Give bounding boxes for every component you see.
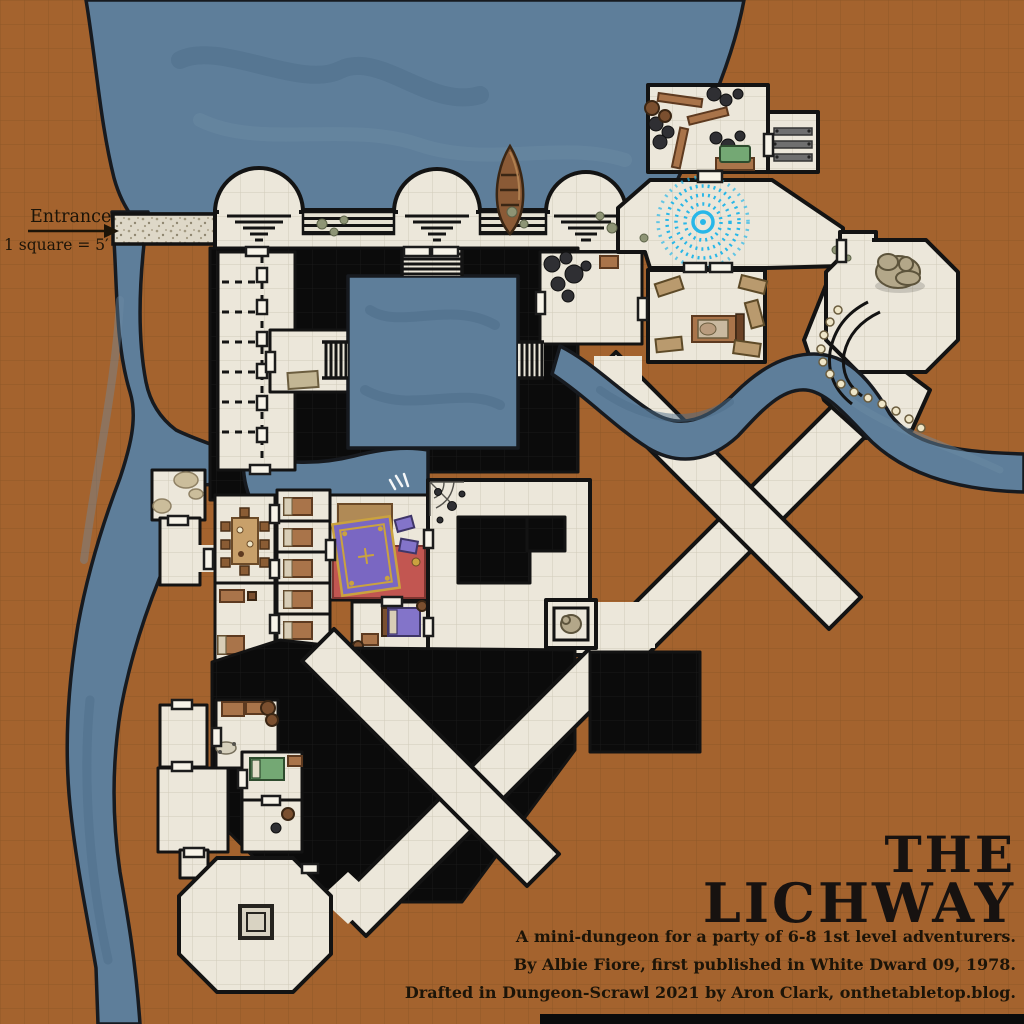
empty-room — [160, 705, 207, 767]
barrel — [417, 601, 427, 611]
desk — [220, 590, 244, 602]
barrel — [282, 808, 294, 820]
shrine — [546, 600, 596, 648]
scale-label: 1 square = 5′ — [4, 236, 109, 254]
sunken-pool — [322, 250, 544, 448]
black-square-room — [590, 652, 700, 752]
coffin-room — [648, 270, 767, 362]
credit-line1: A mini-dungeon for a party of 6-8 1st le… — [515, 927, 1016, 946]
west-corridor — [160, 518, 200, 585]
rubble-room — [152, 470, 205, 520]
stone-slab — [287, 371, 318, 389]
side-table — [362, 634, 378, 645]
map-canvas: Entrance 1 square = 5′ THE LICHWAY A min… — [0, 0, 1024, 1024]
map-title-line2: LICHWAY — [703, 871, 1016, 935]
south-wall-strip — [540, 1014, 1024, 1024]
entrance-tunnel — [113, 214, 217, 244]
green-chest — [720, 146, 750, 162]
ritual-room — [330, 495, 428, 600]
barrel — [645, 101, 659, 115]
pit-square — [240, 906, 272, 938]
lower-hall — [158, 768, 228, 852]
coffin — [655, 337, 682, 353]
debris-room — [540, 252, 642, 344]
weapon-racks — [772, 128, 812, 161]
south-octagon — [179, 858, 331, 992]
purple-bedroom — [352, 601, 428, 652]
dining-room — [215, 495, 275, 583]
entrance-label: Entrance — [30, 207, 111, 227]
bed-cells — [277, 490, 330, 645]
chair — [399, 539, 418, 554]
credit-line3: Drafted in Dungeon-Scrawl 2021 by Aron C… — [405, 983, 1016, 1002]
credit-line2: By Albie Fiore, first published in White… — [514, 955, 1016, 974]
barrel — [659, 110, 671, 122]
ornate-rug — [332, 516, 399, 595]
dungeon-map: Entrance 1 square = 5′ THE LICHWAY A min… — [0, 0, 1024, 1024]
green-bed-room — [242, 752, 302, 800]
coffin — [733, 340, 761, 356]
cellar-room — [242, 800, 302, 852]
dining-table — [232, 518, 258, 564]
